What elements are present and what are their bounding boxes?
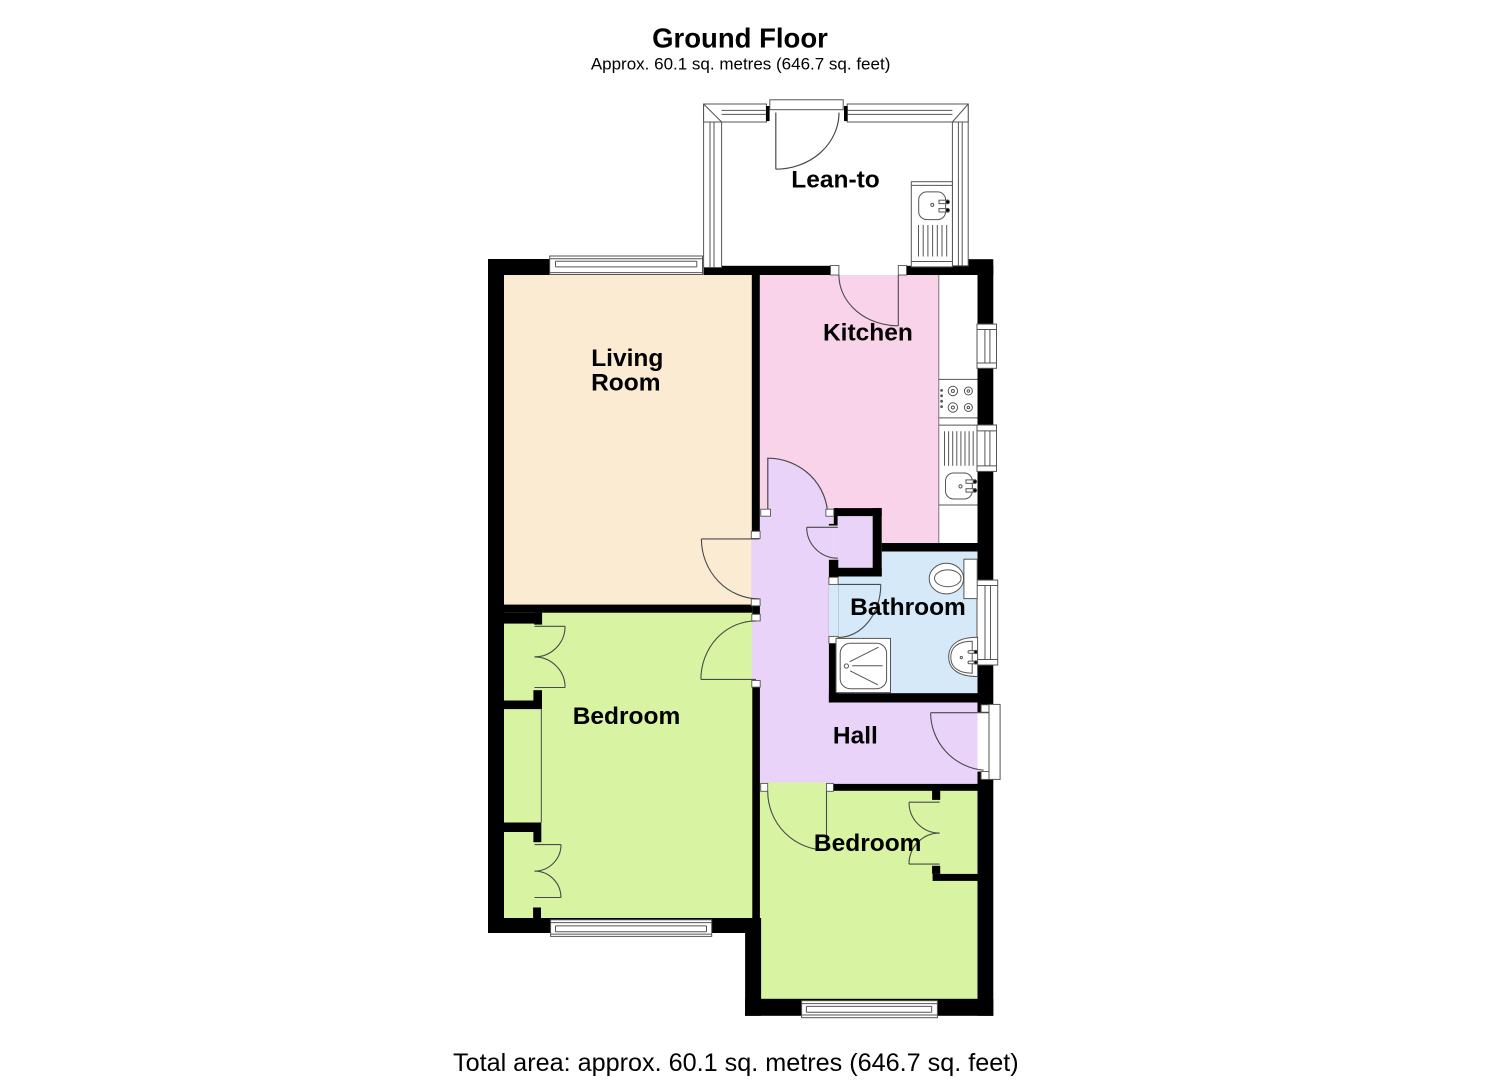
svg-text:Room: Room <box>591 370 660 397</box>
svg-text:Approx. 60.1 sq. metres (646.7: Approx. 60.1 sq. metres (646.7 sq. feet) <box>591 54 891 73</box>
svg-text:Ground Floor: Ground Floor <box>652 23 828 54</box>
svg-text:Bedroom: Bedroom <box>573 703 681 730</box>
svg-text:Total area: approx. 60.1 sq. m: Total area: approx. 60.1 sq. metres (646… <box>453 1049 1019 1077</box>
svg-text:Bathroom: Bathroom <box>850 594 966 621</box>
svg-text:Hall: Hall <box>833 722 878 749</box>
svg-text:Lean-to: Lean-to <box>791 166 880 193</box>
svg-text:Kitchen: Kitchen <box>823 320 913 347</box>
svg-text:Bedroom: Bedroom <box>814 830 922 857</box>
svg-text:Living: Living <box>591 345 663 372</box>
